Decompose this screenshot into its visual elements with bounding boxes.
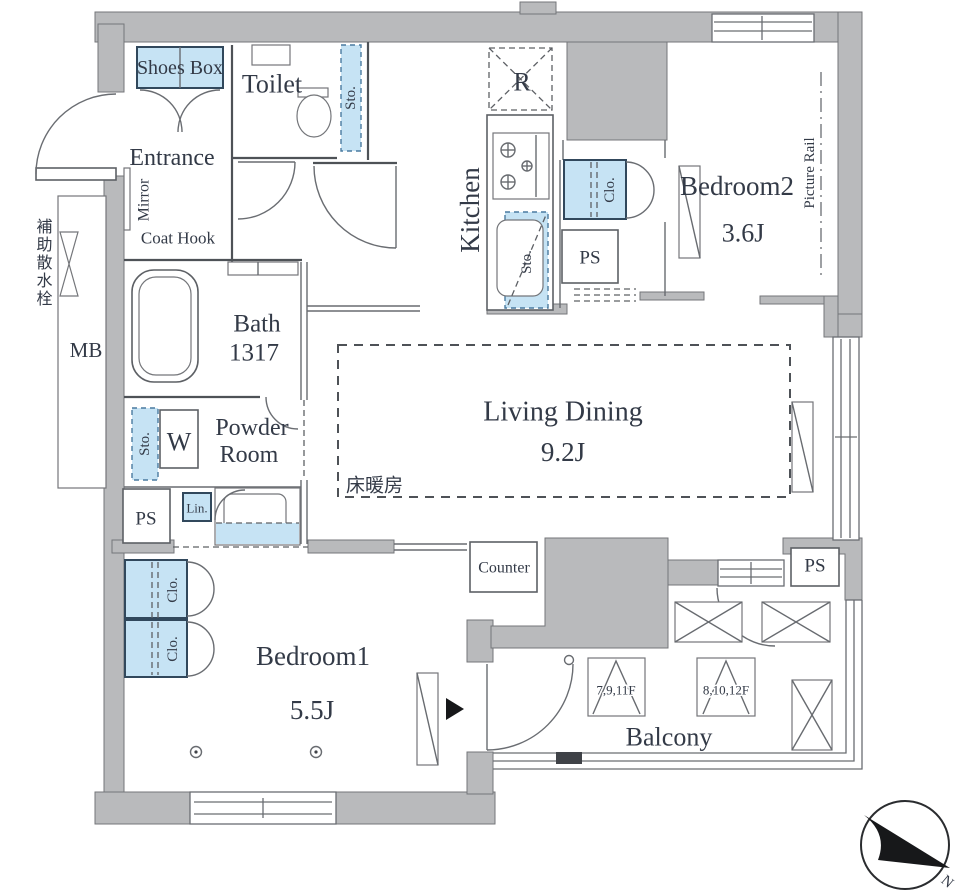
- closet1-door-a: [187, 562, 214, 589]
- toilet-door-swing: [238, 162, 295, 219]
- closet2-door-b: [187, 649, 214, 676]
- drain-icon: [565, 656, 574, 665]
- bathtub-inner: [139, 277, 191, 375]
- wall-kitchen-column: [567, 42, 667, 140]
- label-counter: Counter: [478, 560, 530, 577]
- wall-powder-b1-right: [308, 540, 394, 553]
- label-bath-size: 1317: [229, 340, 279, 367]
- mirror-panel: [124, 168, 130, 230]
- label-balcony: Balcony: [626, 723, 713, 752]
- label-north: N: [938, 872, 957, 891]
- bedroom2-window: [712, 14, 814, 42]
- label-entrance: Entrance: [129, 145, 214, 171]
- label-kitchen-sto: Sto.: [519, 250, 535, 274]
- label-toilet: Toilet: [242, 70, 303, 99]
- label-washer: W: [167, 428, 192, 457]
- label-fridge: R: [513, 68, 531, 97]
- stove: [493, 133, 549, 199]
- floor-plan-page: Shoes Box Toilet Sto. Entrance Mirror Co…: [0, 0, 960, 896]
- balcony-access-door-swing: [487, 664, 573, 750]
- hall-door: [314, 166, 396, 248]
- entrance-door-leaf: [36, 168, 116, 180]
- bath-shelf: [228, 262, 298, 275]
- label-clo2: Clo.: [165, 636, 181, 661]
- closet-k-door-bottom: [626, 190, 654, 218]
- label-mb: MB: [70, 338, 103, 362]
- balcony-step: [556, 752, 582, 764]
- floor-plan-drawing: Shoes Box Toilet Sto. Entrance Mirror Co…: [0, 0, 960, 896]
- label-clo1: Clo.: [165, 577, 181, 602]
- wall-left: [104, 176, 124, 804]
- label-living: Living Dining: [483, 397, 642, 428]
- label-ps-right: PS: [804, 556, 825, 577]
- label-coat-hook: Coat Hook: [141, 229, 216, 248]
- living-door-swing: [314, 166, 396, 248]
- entrance-door-swing: [36, 94, 116, 174]
- direction-arrow-icon: [446, 698, 464, 720]
- wall-bedroom1-right-lower: [467, 752, 493, 794]
- label-mirror: Mirror: [136, 178, 153, 221]
- label-living-size: 9.2J: [541, 437, 585, 467]
- wall-core-strip: [668, 560, 720, 585]
- label-ps-left: PS: [135, 509, 156, 530]
- label-shoes-box: Shoes Box: [137, 57, 223, 79]
- label-kitchen: Kitchen: [455, 167, 485, 253]
- wall-right-upper: [838, 12, 862, 314]
- label-toilet-sto: Sto.: [343, 86, 359, 110]
- bedroom1-area: [125, 560, 573, 824]
- toilet-bowl-icon: [297, 95, 331, 137]
- label-bedroom1-size: 5.5J: [290, 695, 334, 725]
- wall-slide-track2: [760, 296, 828, 304]
- label-bath: Bath: [233, 311, 281, 338]
- wall-entry-column: [98, 24, 124, 92]
- label-powder-sto: Sto.: [137, 432, 153, 456]
- vanity-cabinet: [216, 523, 299, 544]
- wall-right-window-stub: [838, 314, 862, 337]
- wall-bedroom2-right-stub: [824, 296, 838, 337]
- label-kitchen-clo: Clo.: [602, 177, 618, 202]
- label-bedroom2: Bedroom2: [680, 171, 794, 201]
- label-picture-rail: Picture Rail: [802, 137, 818, 208]
- closet1-door-b: [187, 589, 214, 616]
- label-floor-heating: 床暖房: [346, 475, 403, 497]
- closet2-door-a: [187, 622, 214, 649]
- label-bedroom1: Bedroom1: [256, 641, 370, 671]
- living-window: [833, 337, 859, 540]
- wall-top-step: [520, 2, 556, 14]
- compass: [861, 801, 950, 889]
- label-hatch-b: 8,10,12F: [703, 683, 749, 698]
- shoes-box-door-left: [140, 90, 182, 132]
- label-ps-kitchen: PS: [579, 248, 600, 269]
- toilet-tank: [252, 45, 290, 65]
- label-bedroom2-size: 3.6J: [722, 219, 765, 248]
- label-lin: Lin.: [186, 501, 207, 516]
- label-powder-2: Room: [220, 442, 279, 468]
- shoes-box-door-right: [178, 90, 220, 132]
- wall-bedroom1-right-upper: [467, 620, 493, 662]
- closet-k-door-top: [626, 162, 654, 190]
- label-sprinkler: 補助散水栓: [34, 218, 53, 308]
- wall-slide-track1: [640, 292, 704, 300]
- label-hatch-a: 7,9,11F: [596, 683, 635, 698]
- label-powder-1: Powder: [215, 415, 288, 441]
